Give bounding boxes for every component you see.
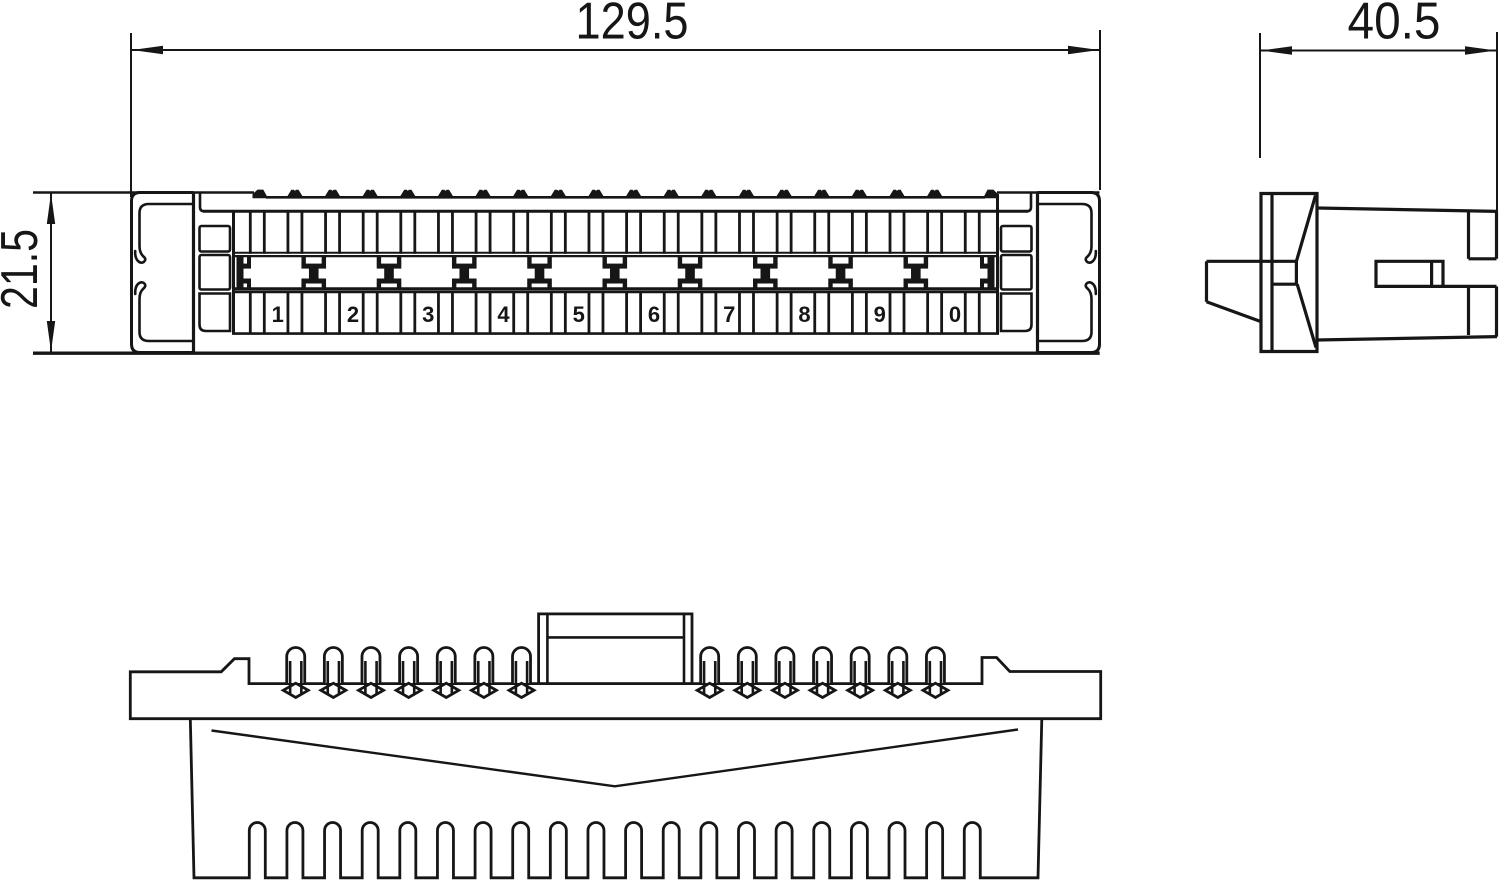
svg-text:129.5: 129.5 [576,0,689,51]
svg-text:9: 9 [874,302,886,327]
svg-text:0: 0 [949,302,961,327]
svg-text:21.5: 21.5 [0,229,49,309]
svg-text:4: 4 [497,302,510,327]
svg-text:8: 8 [798,302,810,327]
svg-text:5: 5 [573,302,585,327]
svg-text:3: 3 [422,302,434,327]
svg-text:7: 7 [723,302,735,327]
svg-text:1: 1 [272,302,284,327]
svg-text:6: 6 [648,302,660,327]
svg-text:40.5: 40.5 [1348,0,1441,51]
svg-text:2: 2 [347,302,359,327]
